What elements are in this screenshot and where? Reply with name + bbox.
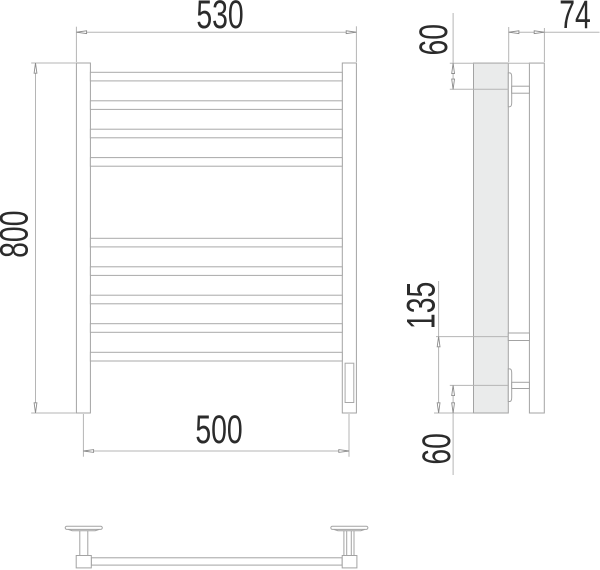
svg-text:500: 500 bbox=[195, 408, 242, 452]
svg-text:60: 60 bbox=[413, 24, 457, 56]
svg-text:74: 74 bbox=[559, 0, 591, 37]
svg-text:60: 60 bbox=[415, 433, 459, 465]
svg-text:800: 800 bbox=[0, 211, 37, 258]
svg-text:135: 135 bbox=[400, 282, 444, 329]
svg-text:530: 530 bbox=[196, 0, 243, 37]
